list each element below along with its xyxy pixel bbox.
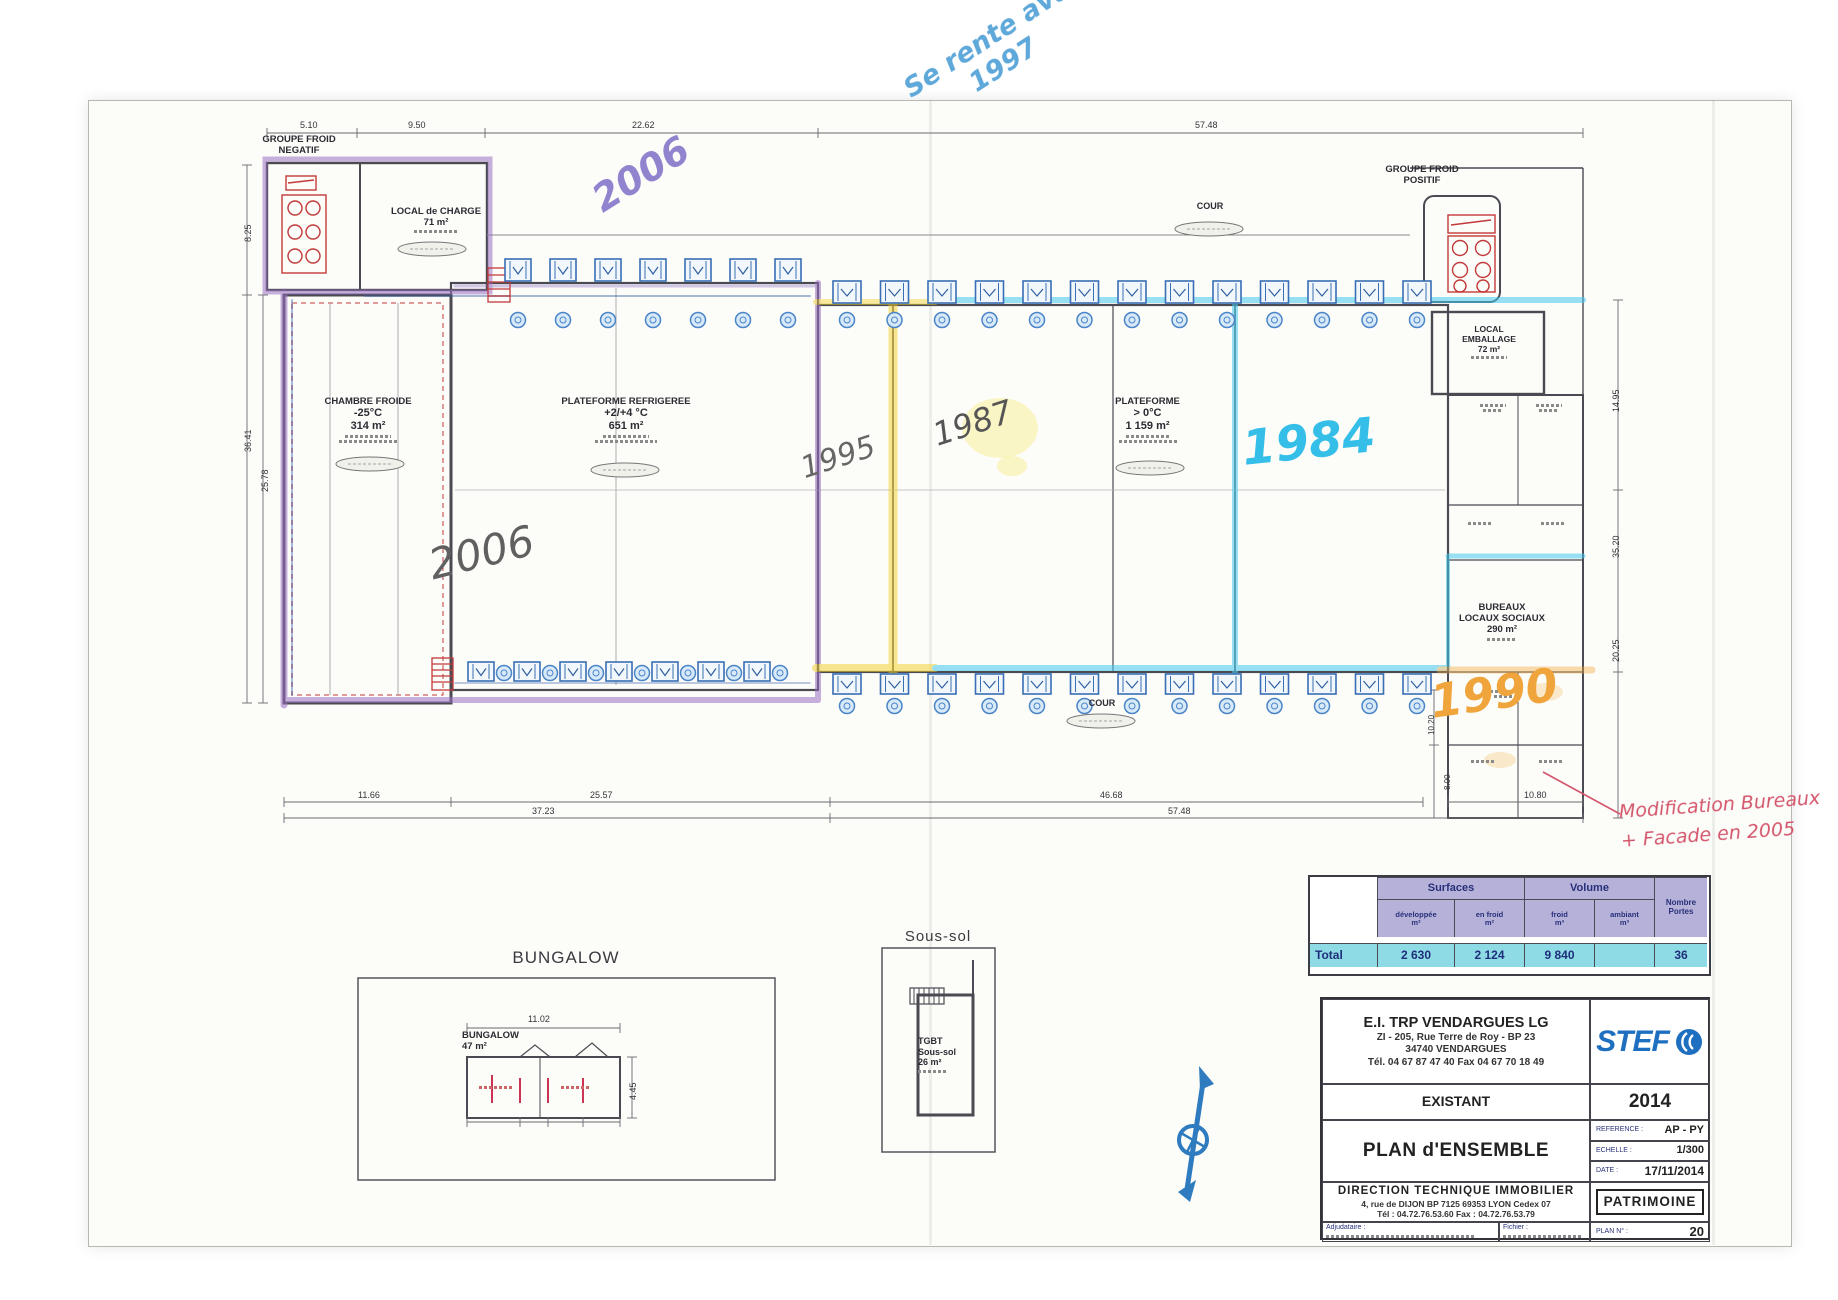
fichier-cell: Fichier : [1499,1222,1590,1242]
table-row-total-label: Total [1310,943,1377,967]
label-local-de-charge: LOCAL de CHARGE71 m² [378,206,494,235]
dim-top-1: 5.10 [300,120,318,130]
dim-bottom-3: 46.68 [1100,790,1123,800]
tgbt-label: TGBTSous-sol26 m² [918,1036,974,1075]
dim-left-1: 8.25 [243,224,253,242]
dim-right-3: 20.25 [1611,639,1621,662]
table-col-enfroid: en froidm² [1454,899,1524,937]
dim-bottom-5: 37.23 [532,806,555,816]
office-label-squiggle [1478,402,1508,414]
table-total-ambiant [1594,943,1654,967]
label-groupe-froid-negatif: GROUPE FROIDNEGATIF [255,134,343,156]
date-cell: DATE : 17/11/2014 [1590,1161,1710,1182]
dim-right-inner-2: 8.00 [1443,774,1452,790]
page-title: PLAN d'ENSEMBLE [1363,1139,1549,1163]
scanned-floor-plan-page: GROUPE FROIDNEGATIF GROUPE FROIDPOSITIF … [0,0,1838,1300]
scale-cell: ECHELLE : 1/300 [1590,1141,1710,1161]
dim-left-2: 36.41 [243,429,253,452]
table-col-ambiant: ambiantm³ [1594,899,1654,937]
patrimoine-stamp: PATRIMOINE [1596,1189,1705,1216]
label-chambre-froide: CHAMBRE FROIDE -25°C 314 m² [318,396,418,445]
dim-right-1: 14.95 [1611,389,1621,412]
bungalow-room-label-squiggle [478,1084,514,1091]
stef-logo-icon [1674,1027,1704,1057]
table-corner-cell [1310,877,1377,937]
adjudataire-cell: Adjudataire : [1322,1222,1499,1242]
patrimoine-cell: PATRIMOINE [1590,1182,1710,1222]
table-col-froid: froidm³ [1524,899,1594,937]
status-cell: EXISTANT [1322,1084,1590,1120]
label-cour-bottom: COUR [1072,698,1132,709]
table-total-portes: 36 [1654,943,1707,967]
reference-cell: REFERENCE : AP - PY [1590,1120,1710,1141]
office-label-squiggle [1538,520,1568,527]
dim-left-3: 25.78 [260,469,270,492]
office-label-squiggle [1468,758,1498,765]
surfaces-volume-table: Surfaces Volume NombrePortes développéem… [1308,875,1711,976]
office-label-squiggle [1536,758,1566,765]
plan-title-cell: PLAN d'ENSEMBLE [1322,1120,1590,1182]
bungalow-label: BUNGALOW47 m² [462,1030,552,1052]
label-plateforme-positive: PLATEFORME > 0°C 1 159 m² [1090,396,1205,445]
year-cell: 2014 [1590,1084,1710,1120]
bungalow-heading: BUNGALOW [481,948,651,968]
dim-bottom-1: 11.66 [358,790,380,800]
table-col-developpee: développéem² [1377,899,1454,937]
dim-bottom-2: 25.57 [590,790,613,800]
plan-number-cell: PLAN N° : 20 [1590,1222,1710,1242]
company-name: E.I. TRP VENDARGUES LG [1363,1014,1548,1032]
title-block: E.I. TRP VENDARGUES LG ZI - 205, Rue Ter… [1320,997,1710,1240]
bungalow-room-label-squiggle [560,1084,592,1091]
dim-bottom-4: 10.80 [1524,790,1547,800]
sous-sol-heading: Sous-sol [888,928,988,945]
dim-right-2: 35.20 [1611,535,1621,558]
dim-bottom-6: 57.48 [1168,806,1191,816]
dim-top-3: 22.62 [632,120,655,130]
table-total-developpee: 2 630 [1377,943,1454,967]
label-plateforme-refrigeree: PLATEFORME REFRIGEREE +2/+4 °C 651 m² [556,396,696,445]
dim-bungalow-width: 11.02 [528,1014,550,1024]
dim-top-4: 57.48 [1195,120,1218,130]
stef-logo: STEF [1590,999,1710,1084]
dim-top-2: 9.50 [408,120,426,130]
paper-fold-line-right [1712,100,1715,1245]
office-label-squiggle [1534,402,1564,414]
table-total-enfroid: 2 124 [1454,943,1524,967]
table-group-surfaces: Surfaces [1377,877,1524,899]
label-cour-top: COUR [1180,201,1240,212]
label-bureaux-locaux-sociaux: BUREAUXLOCAUX SOCIAUX 290 m² [1438,602,1566,643]
office-label-squiggle [1465,520,1495,527]
dim-bungalow-height: 4.45 [628,1082,638,1100]
table-col-portes: NombrePortes [1654,877,1707,937]
table-total-froid: 9 840 [1524,943,1594,967]
stef-logo-text: STEF [1596,1023,1669,1061]
label-groupe-froid-positif: GROUPE FROIDPOSITIF [1372,164,1472,186]
company-info: E.I. TRP VENDARGUES LG ZI - 205, Rue Ter… [1322,999,1590,1084]
label-local-emballage: LOCALEMBALLAGE 72 m² [1448,324,1530,361]
table-group-volume: Volume [1524,877,1654,899]
direction-cell: DIRECTION TECHNIQUE IMMOBILIER 4, rue de… [1322,1182,1590,1222]
